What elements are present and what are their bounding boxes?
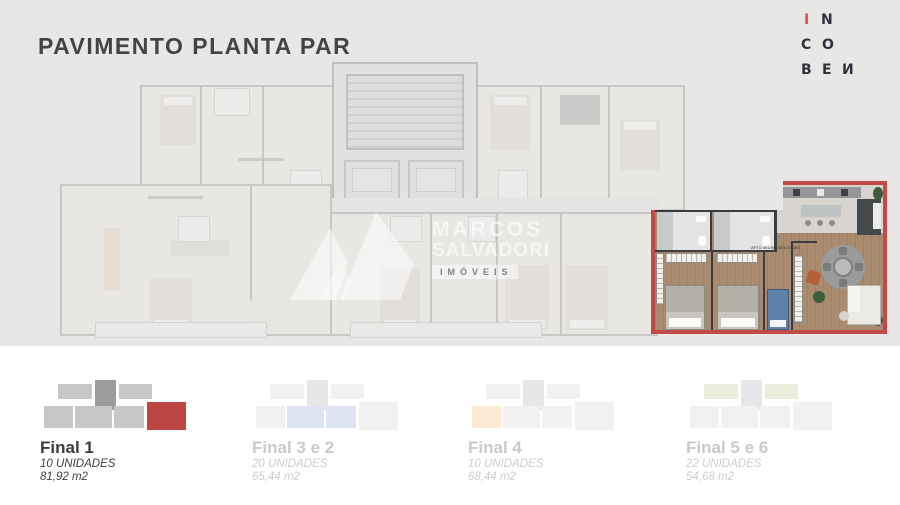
- armchair: [805, 269, 821, 285]
- option-title: Final 3 e 2: [252, 438, 457, 458]
- elevator-left: [344, 160, 400, 200]
- side-table: [839, 311, 849, 321]
- plant-icon: [813, 291, 825, 303]
- option-units: 10 UNIDADES: [468, 458, 673, 471]
- oven-icon: [841, 189, 848, 196]
- chair: [839, 247, 847, 255]
- option-area: 81,92 m2: [40, 471, 245, 484]
- dining-table: [833, 257, 853, 277]
- stair-elevator-core: [332, 62, 478, 212]
- stool: [805, 220, 811, 226]
- building-footprint-icon: [472, 378, 614, 430]
- bed-3: [767, 289, 789, 330]
- corridor: [332, 198, 658, 212]
- sink-icon: [817, 189, 824, 196]
- unit-option-final-5-6[interactable]: Final 5 e 6 22 UNIDADES 54,68 m2: [686, 378, 891, 484]
- option-area: 54,68 m2: [686, 471, 891, 484]
- bathroom-1: [657, 212, 710, 250]
- option-title: Final 4: [468, 438, 673, 458]
- cooktop-icon: [793, 189, 800, 196]
- stairs: [346, 74, 464, 150]
- chair: [855, 263, 863, 271]
- kitchen-island: [801, 205, 841, 217]
- chair: [823, 263, 831, 271]
- sofa: [847, 285, 881, 325]
- appliance: [873, 203, 881, 229]
- unit-option-final-1[interactable]: Final 1 10 UNIDADES 81,92 m2: [40, 378, 245, 484]
- stool: [817, 220, 823, 226]
- option-title: Final 5 e 6: [686, 438, 891, 458]
- option-units: 22 UNIDADES: [686, 458, 891, 471]
- bed-1: [665, 285, 705, 330]
- option-units: 20 UNIDADES: [252, 458, 457, 471]
- wardrobe: [665, 253, 707, 263]
- option-area: 68,44 m2: [468, 471, 673, 484]
- elevator-right: [408, 160, 464, 200]
- stool: [829, 220, 835, 226]
- building-footprint-icon: [256, 378, 398, 430]
- apartment-number-label: APTO 401/501/601/701/801: [751, 245, 827, 250]
- building-footprint-icon: [44, 378, 186, 430]
- wardrobe: [716, 253, 758, 263]
- closet: [794, 255, 803, 323]
- bed-2: [717, 285, 759, 330]
- wardrobe: [656, 253, 664, 305]
- unit-option-final-3-2[interactable]: Final 3 e 2 20 UNIDADES 65,44 m2: [252, 378, 457, 484]
- chair: [839, 279, 847, 287]
- option-area: 65,44 m2: [252, 471, 457, 484]
- unit-option-final-4[interactable]: Final 4 10 UNIDADES 68,44 m2: [468, 378, 673, 484]
- building-footprint-icon: [690, 378, 832, 430]
- plant-icon: [873, 187, 883, 200]
- option-title: Final 1: [40, 438, 245, 458]
- option-units: 10 UNIDADES: [40, 458, 245, 471]
